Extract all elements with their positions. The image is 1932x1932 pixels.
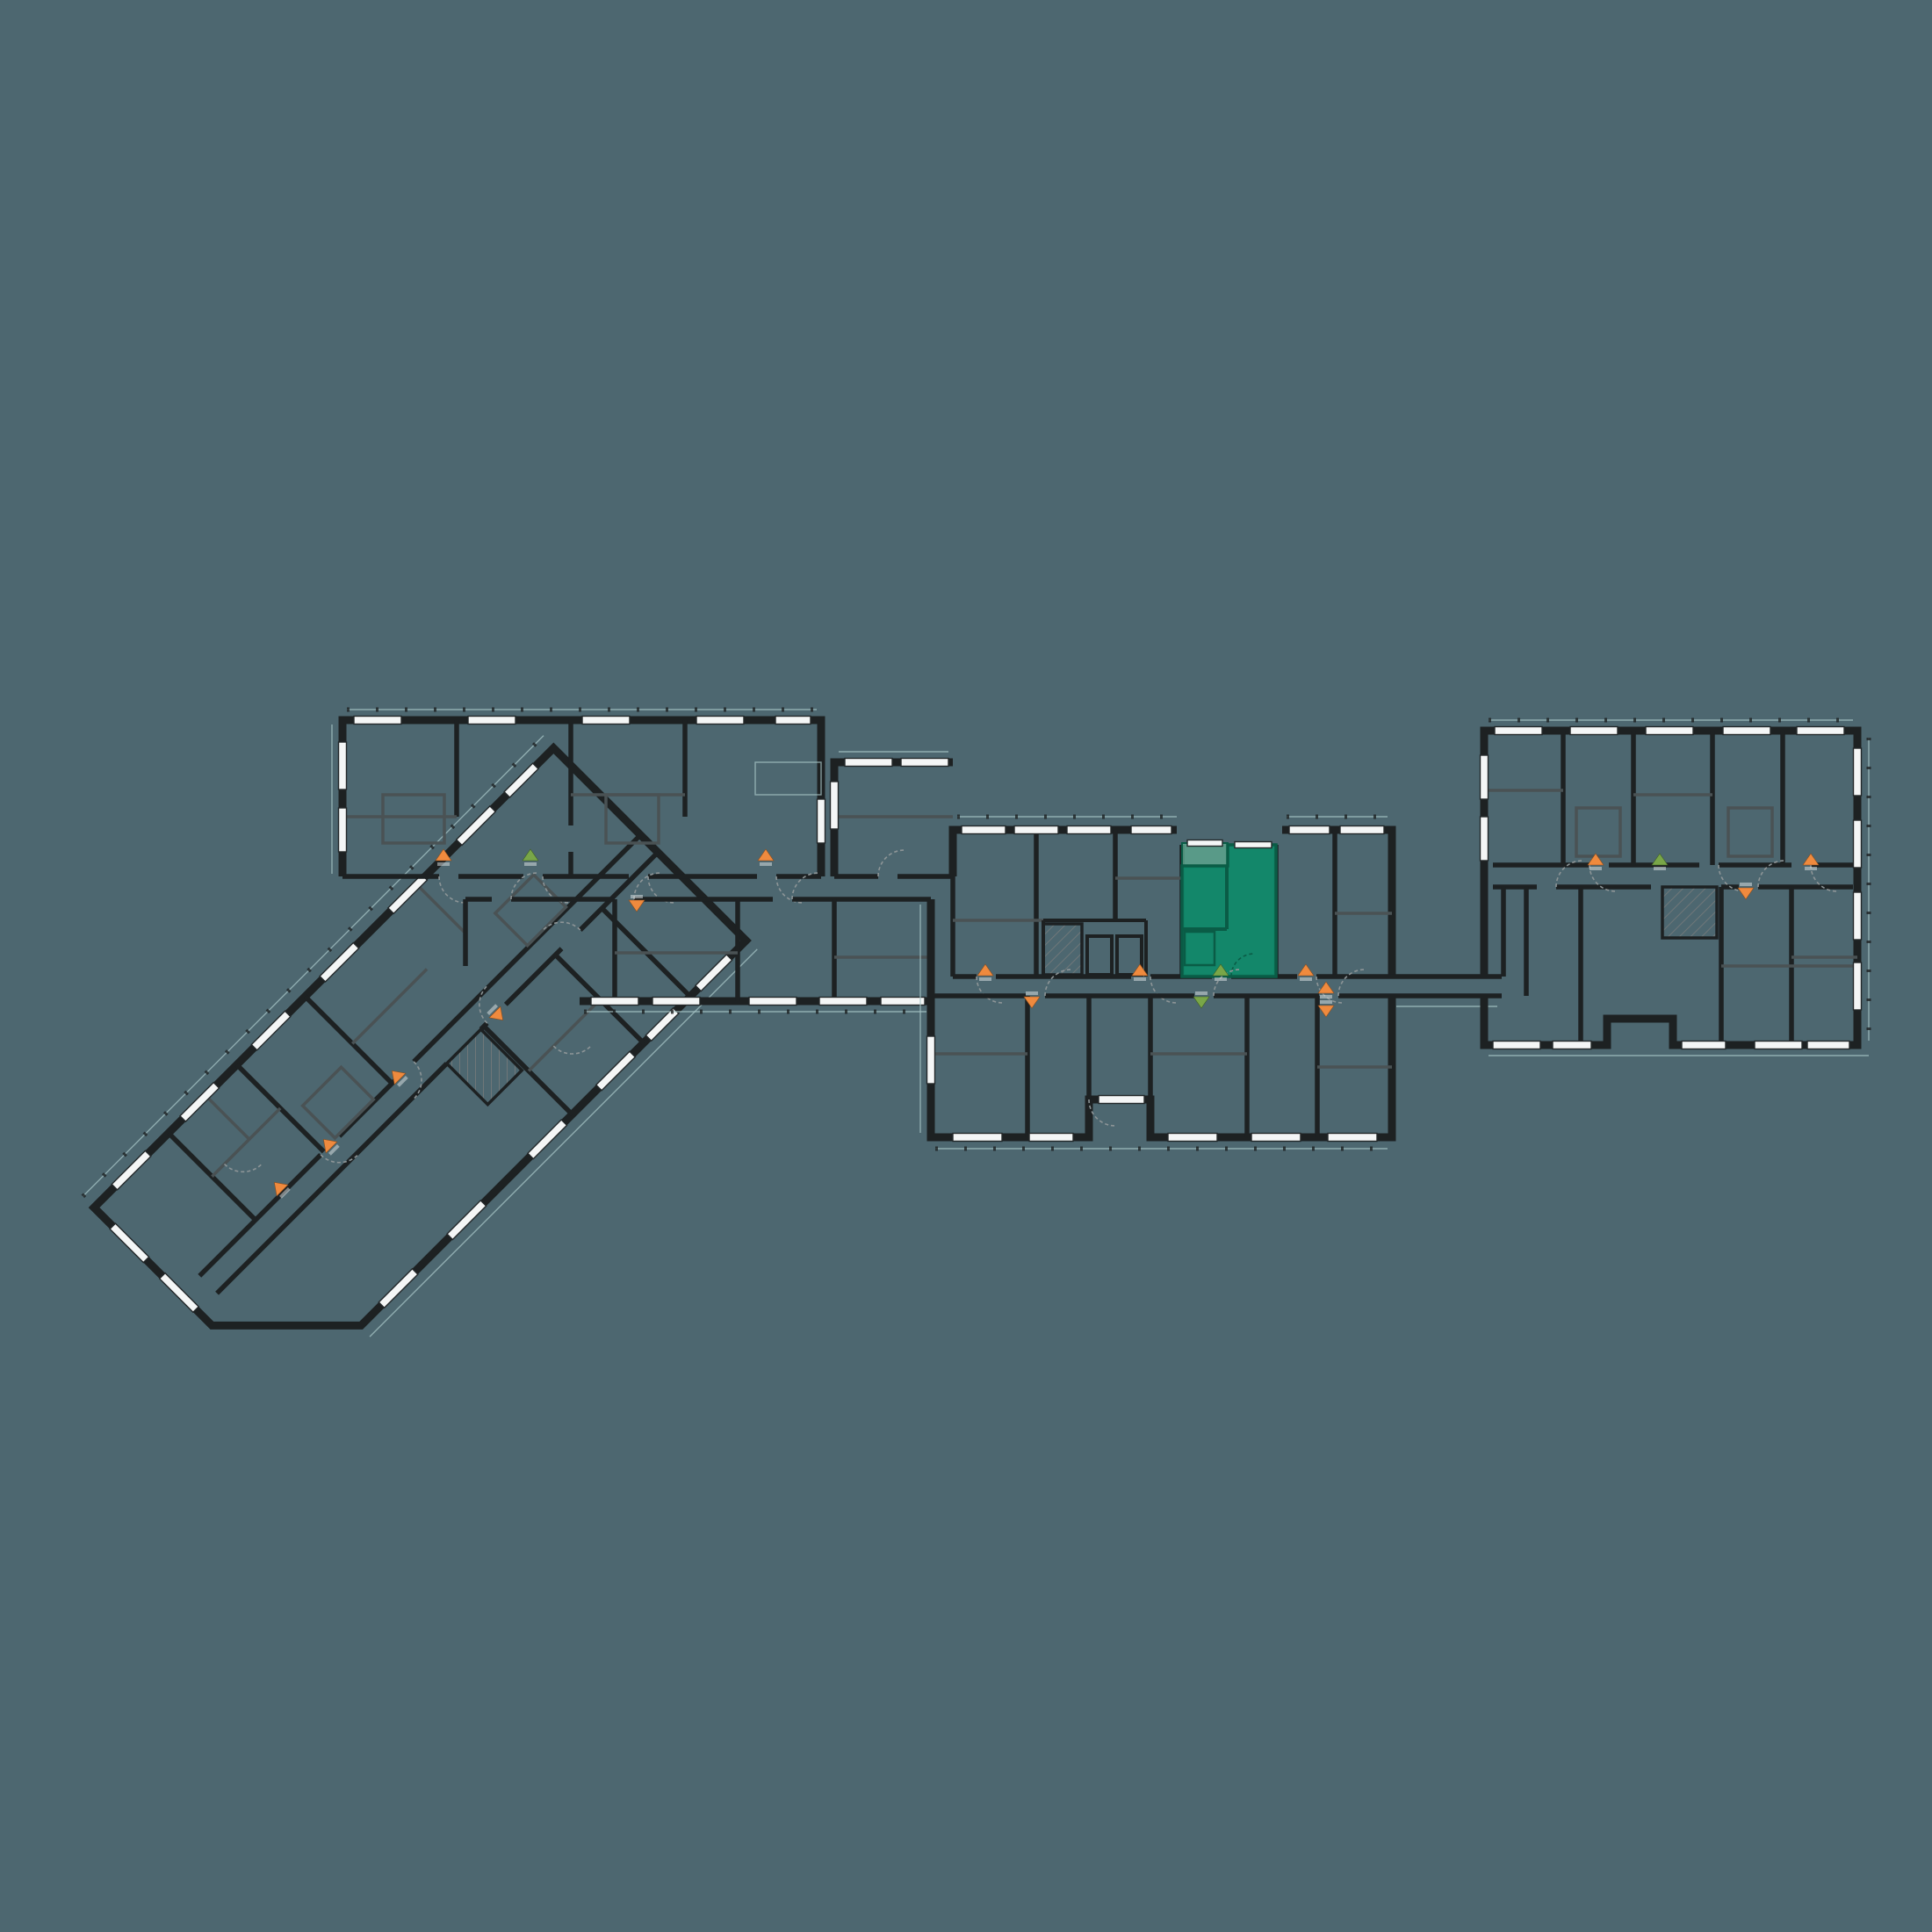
marker-label xyxy=(1300,977,1312,981)
floor-plan xyxy=(0,0,1932,1932)
marker-label xyxy=(631,895,643,898)
selected-unit-window xyxy=(1187,840,1222,847)
floor-plan-canvas xyxy=(0,0,1932,1932)
central-stairwell xyxy=(1043,924,1082,975)
marker-label xyxy=(979,977,991,981)
marker-label xyxy=(1195,991,1207,995)
marker-label xyxy=(1740,883,1752,886)
right-stairwell xyxy=(1662,887,1717,938)
marker-label xyxy=(1654,867,1666,870)
selected-unit-shape[interactable] xyxy=(1182,845,1276,977)
selected-unit[interactable] xyxy=(1182,840,1276,977)
selected-unit-balcony[interactable] xyxy=(1182,843,1228,868)
marker-label xyxy=(1805,867,1817,870)
marker-label xyxy=(1215,977,1227,981)
marker-label xyxy=(1590,867,1602,870)
marker-label xyxy=(437,862,450,866)
marker-label xyxy=(1134,977,1146,981)
selected-unit-window xyxy=(1235,842,1272,848)
marker-label xyxy=(524,862,537,866)
background xyxy=(0,0,1932,1932)
marker-label xyxy=(1320,1000,1332,1004)
marker-label xyxy=(1026,991,1038,995)
marker-label xyxy=(760,862,772,866)
marker-label xyxy=(1320,995,1332,998)
